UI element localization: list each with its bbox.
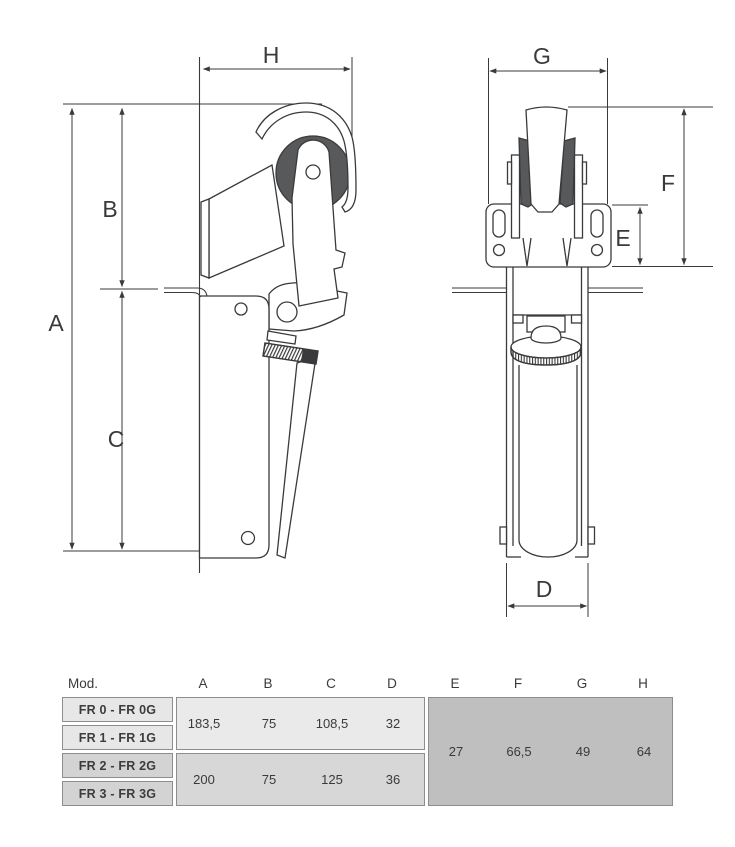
model-cell-fr0: FR 0 - FR 0G [62, 697, 173, 722]
value-h-shared: 64 [612, 744, 676, 759]
value-d-group1: 32 [361, 716, 425, 731]
table-header-e: E [425, 676, 485, 691]
page: H A B C [0, 0, 735, 847]
spec-table: Mod. A B C D E F G H FR 0 - FR 0G FR 1 -… [0, 0, 735, 847]
value-block-shared: 27 66,5 49 64 [428, 697, 673, 806]
table-header-mod: Mod. [68, 676, 98, 691]
value-b-group1: 75 [237, 716, 301, 731]
table-header-b: B [238, 676, 298, 691]
value-d-group2: 36 [361, 772, 425, 787]
value-c-group1: 108,5 [300, 716, 364, 731]
value-g-shared: 49 [551, 744, 615, 759]
value-a-group1: 183,5 [172, 716, 236, 731]
model-cell-fr3: FR 3 - FR 3G [62, 781, 173, 806]
value-block-fr0-fr1: 183,5 75 108,5 32 [176, 697, 425, 750]
value-a-group2: 200 [172, 772, 236, 787]
model-cell-fr1: FR 1 - FR 1G [62, 725, 173, 750]
table-header-a: A [173, 676, 233, 691]
value-e-shared: 27 [424, 744, 488, 759]
value-c-group2: 125 [300, 772, 364, 787]
table-header-d: D [362, 676, 422, 691]
value-b-group2: 75 [237, 772, 301, 787]
model-cell-fr2: FR 2 - FR 2G [62, 753, 173, 778]
table-header-h: H [613, 676, 673, 691]
table-header-f: F [488, 676, 548, 691]
value-block-fr2-fr3: 200 75 125 36 [176, 753, 425, 806]
value-f-shared: 66,5 [487, 744, 551, 759]
table-header-g: G [552, 676, 612, 691]
table-header-c: C [301, 676, 361, 691]
